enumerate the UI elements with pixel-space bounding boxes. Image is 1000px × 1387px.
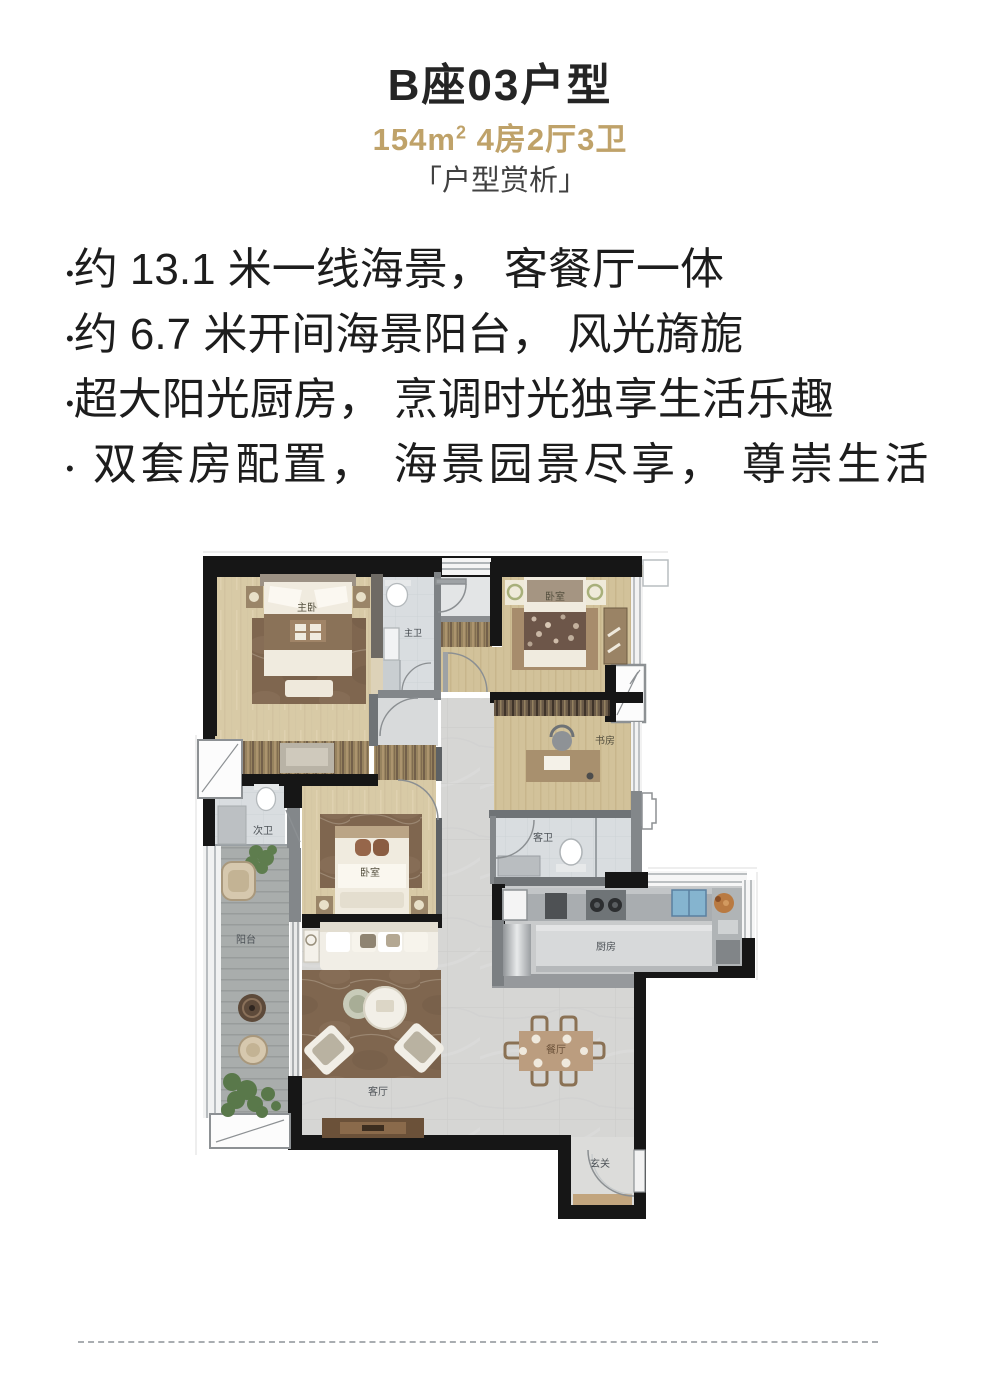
svg-text:主卫: 主卫 [404,627,422,638]
svg-text:次卫: 次卫 [253,824,273,837]
svg-text:玄关: 玄关 [590,1157,610,1170]
svg-text:主卧: 主卧 [297,601,317,614]
svg-text:卧室: 卧室 [545,590,565,603]
svg-text:客卫: 客卫 [533,831,553,844]
svg-text:厨房: 厨房 [596,940,616,953]
svg-text:客厅: 客厅 [368,1085,388,1098]
svg-text:餐厅: 餐厅 [546,1043,566,1056]
svg-text:阳台: 阳台 [236,933,256,946]
svg-text:卧室: 卧室 [360,866,380,879]
svg-text:书房: 书房 [595,734,615,747]
